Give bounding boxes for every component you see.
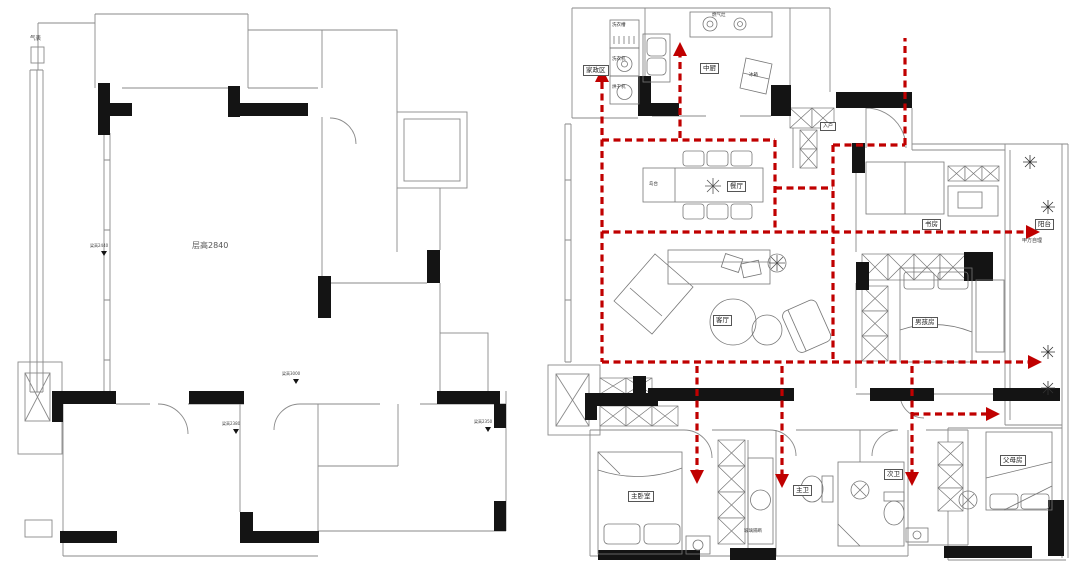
room-label-chinese-kitchen: 中厨 bbox=[700, 63, 719, 74]
room-label-dining-room: 餐厅 bbox=[727, 181, 746, 192]
room-label-study: 书房 bbox=[922, 219, 941, 230]
room-label-master-bath: 主卫 bbox=[793, 485, 812, 496]
second-bath-set bbox=[884, 492, 928, 542]
floor-plans-canvas: 气表 层高2840 梁高2440 梁高3000 梁高2380 梁高2350 bbox=[0, 0, 1080, 562]
beam-marker-top: 梁高3000 bbox=[282, 371, 300, 377]
beam-marker-hall-left: 梁高2380 bbox=[222, 421, 240, 427]
item-label-glass-partition: 玻璃隔断 bbox=[744, 529, 762, 534]
beam-marker-hall-right: 梁高2350 bbox=[474, 419, 492, 425]
wardrobe-hatch-cells bbox=[600, 108, 999, 544]
master-bath-set bbox=[748, 458, 904, 546]
stove-counter bbox=[690, 12, 772, 37]
beam-marker-left: 梁高2440 bbox=[90, 243, 108, 249]
item-label-washer: 洗衣机 bbox=[612, 57, 626, 62]
structural-plan-drawing bbox=[0, 0, 545, 562]
parents-room-set bbox=[959, 432, 1052, 510]
room-label-boy-room: 男孩房 bbox=[912, 317, 938, 328]
ceiling-height-label: 层高2840 bbox=[192, 240, 228, 251]
structural-walls-black bbox=[52, 83, 506, 543]
room-label-laundry-zone: 家政区 bbox=[583, 65, 609, 76]
item-label-owner-managed: 甲方自理 bbox=[1022, 238, 1042, 244]
master-bedroom-set bbox=[598, 452, 710, 554]
item-label-gas-stove: 燃气灶 bbox=[712, 13, 726, 18]
furnished-plan: 家政区 中厨 餐厅 客厅 书房 阳台 男孩房 主卧室 主卫 次卫 父母房 入户 … bbox=[545, 0, 1080, 562]
furniture-layer bbox=[598, 12, 1055, 554]
room-label-living-room: 客厅 bbox=[713, 315, 732, 326]
structural-walls-thin bbox=[18, 14, 506, 556]
room-label-entry: 入户 bbox=[820, 122, 836, 131]
item-label-island: 岛台 bbox=[649, 182, 658, 187]
structural-plan: 气表 层高2840 梁高2440 梁高3000 梁高2380 梁高2350 bbox=[0, 0, 545, 562]
item-label-fridge: 冰箱 bbox=[749, 73, 758, 78]
furnished-walls-black bbox=[585, 76, 1064, 560]
living-set bbox=[614, 250, 833, 354]
item-label-laundry-sink: 洗衣槽 bbox=[612, 23, 626, 28]
plant-icons bbox=[1023, 155, 1055, 395]
gas-meter-label: 气表 bbox=[30, 34, 41, 42]
boy-room-set bbox=[900, 268, 1004, 362]
item-label-dryer: 烘干机 bbox=[612, 85, 626, 90]
room-label-balcony: 阳台 bbox=[1035, 219, 1054, 230]
room-label-second-bath: 次卫 bbox=[884, 469, 903, 480]
room-label-master-bedroom: 主卧室 bbox=[628, 491, 654, 502]
room-label-parents-room: 父母房 bbox=[1000, 455, 1026, 466]
